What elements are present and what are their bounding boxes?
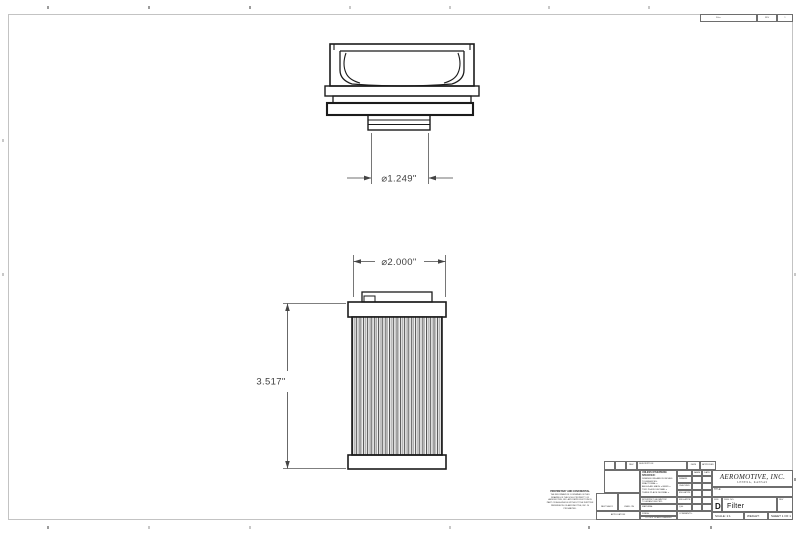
tolerance-line: THREE PLACE DECIMAL ± [642,492,675,495]
drawn-cell: DRAWN [677,476,692,483]
top-strip-sheet-cell: 1 [777,14,793,22]
title-label: TITLE: [714,489,721,492]
comments-cell: COMMENTS: [677,511,712,520]
element-top-cap [348,302,446,317]
interpret-cell: INTERPRET GEOMETRIC TOLERANCING PER: [640,497,677,504]
size-label: SIZE [714,499,719,502]
rev-strip-rev-cell: REV. [626,461,637,470]
size-cell: SIZE D [712,497,722,512]
cap-view [325,44,479,130]
used-on-cell: USED ON [618,493,640,511]
cap-lock-ring [327,103,473,115]
used-on-label: USED ON [624,506,634,509]
dim-element-diameter: ⌀2.000" [381,257,416,268]
mfg-appr-name-cell [692,497,702,504]
mfg-appr-date-cell [702,497,712,504]
rev-cell: REV [777,497,793,512]
comments-label: COMMENTS: [679,513,692,516]
company-cell: AEROMOTIVE, INC. LENEXA, KANSAS [712,470,793,487]
scale-cell: SCALE: 1:1 [712,512,744,520]
rev-strip-cell [615,461,626,470]
port-thread-lines [368,120,430,125]
cap-inner-contour [340,51,464,86]
drawing-views: ⌀1.249" ⌀2.000" 3.517" [0,0,800,533]
name-header-label: NAME [694,472,700,475]
scale-value: SCALE: 1:1 [715,515,731,519]
dwg-no-value: Filter [727,503,744,510]
company-name: AEROMOTIVE, INC. [713,473,792,481]
proprietary-text: THE INFORMATION CONTAINED IN THIS DRAWIN… [546,494,594,511]
cap-inner-fillets [344,53,460,83]
top-strip-dwg-no: Filter [716,17,721,20]
rev-strip-description-cell: DESCRIPTION [637,461,687,470]
mfg-appr-cell: MFG APPR. [677,497,692,504]
dim-element-height: 3.517" [256,377,285,388]
rev-strip-description-label: DESCRIPTION [639,463,653,466]
dim-element-height-group [283,304,346,469]
qa-date-cell [702,504,712,511]
tolerance-cell: UNLESS OTHERWISE SPECIFIED: DIMENSIONS A… [640,470,677,497]
sheet-value: SHEET 1 OF 1 [771,515,791,519]
do-not-scale-label: DO NOT SCALE DRAWING [646,517,672,520]
checked-name-cell [692,483,702,490]
weight-cell: WEIGHT: [744,512,768,520]
checked-date-cell [702,483,712,490]
drawn-name-cell [692,476,702,483]
element-pleated-media [352,317,442,455]
eng-appr-label: ENG APPR. [679,492,691,495]
element-view [348,292,446,469]
mfg-appr-label: MFG APPR. [679,499,691,502]
date-header-label: DATE [704,472,710,475]
qa-cell: Q.A. [677,504,692,511]
eng-appr-date-cell [702,490,712,497]
title-cell: TITLE: [712,487,793,497]
size-value: D [715,502,721,511]
sheet-cell: SHEET 1 OF 1 [768,512,793,520]
top-strip-sheet: 1 [784,17,785,20]
application-label: APPLICATION [611,514,625,517]
rev-label: REV [779,499,783,502]
eng-appr-name-cell [692,490,702,497]
qa-label: Q.A. [679,506,683,509]
next-assy-cell: NEXT ASSY [596,493,618,511]
cap-seal-ring [333,96,471,103]
top-strip-dwg-cell: Filter [700,14,757,22]
dwg-no-cell: DWG. NO. Filter [722,497,777,512]
application-cell: APPLICATION [596,511,640,520]
do-not-scale-cell: DO NOT SCALE DRAWING [640,516,677,520]
proprietary-title: PROPRIETARY AND CONFIDENTIAL [546,491,594,493]
drawn-label: DRAWN [679,478,687,481]
dwg-no-label: DWG. NO. [724,499,734,502]
finish-label: FINISH [642,513,649,516]
material-label: MATERIAL [642,506,653,509]
rev-strip-cell [604,461,615,470]
checked-cell: CHECKED [677,483,692,490]
checked-label: CHECKED [679,485,690,488]
material-cell: MATERIAL [640,504,677,511]
top-strip-rev-label: REV [765,17,769,20]
element-bottom-cap [348,455,446,469]
element-top-step [362,292,432,302]
next-assy-label: NEXT ASSY [601,506,613,509]
eng-appr-cell: ENG APPR. [677,490,692,497]
weight-label: WEIGHT: [747,515,760,519]
interpret-label: INTERPRET GEOMETRIC TOLERANCING PER: [642,499,676,504]
rev-strip-date-cell: DATE [687,461,700,470]
rev-strip-date-label: DATE [691,464,696,467]
rev-strip-approved-label: APPROVED [702,464,714,467]
cap-port-neck [368,115,430,130]
qa-name-cell [692,504,702,511]
cap-corner-notches [334,44,470,50]
element-top-tab [364,296,375,302]
drawn-date-cell [702,476,712,483]
cap-flange [325,86,479,96]
proprietary-block: PROPRIETARY AND CONFIDENTIAL THE INFORMA… [546,491,594,520]
titleblock-empty-cell [604,470,640,493]
rev-strip-rev-label: REV. [629,464,634,467]
rev-strip-approved-cell: APPROVED [700,461,716,470]
company-subtitle: LENEXA, KANSAS [713,481,792,484]
dim-port-diameter: ⌀1.249" [381,174,416,185]
top-strip-rev-cell: REV [757,14,777,22]
extension-lines [283,304,346,469]
